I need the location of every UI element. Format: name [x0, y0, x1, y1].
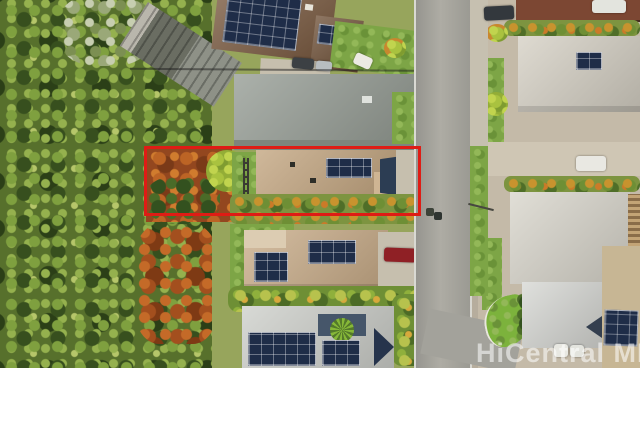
- tan-house-white-wing: [244, 230, 286, 248]
- parkway-strip: [470, 146, 488, 296]
- trash-bin-2: [434, 212, 442, 220]
- hedge-mid-right: [504, 176, 640, 192]
- bottom-white-margin: [0, 368, 640, 426]
- white-truck-top-corner: [592, 0, 626, 13]
- solar-array-large: [222, 0, 302, 51]
- right-roof-shadow: [518, 106, 640, 112]
- property-boundary-overlay: [144, 146, 421, 216]
- parked-suv-street: [484, 5, 515, 21]
- skylight: [362, 96, 372, 103]
- white-solar-house: [242, 306, 394, 368]
- orange-shrub-right: [486, 24, 508, 42]
- gray-roof-house: [234, 74, 414, 150]
- trash-bin-1: [426, 208, 434, 216]
- listing-photo-page: HiCentral MLS: [0, 0, 640, 426]
- courtyard-palm: [330, 318, 354, 342]
- side-lawn-gray-house: [392, 92, 414, 144]
- white-house-solar-right: [322, 340, 360, 366]
- watermark-text: HiCentral MLS: [476, 338, 640, 368]
- right-driveway: [486, 142, 640, 176]
- bottom-house-navy-notch: [586, 316, 602, 338]
- hedge-top-right: [504, 20, 640, 36]
- aerial-photo: HiCentral MLS: [0, 0, 640, 368]
- red-car: [384, 247, 416, 262]
- pergola-slats: [628, 194, 640, 246]
- white-roof-house-right-top: [518, 36, 640, 112]
- orange-tree-top: [384, 38, 406, 58]
- tan-solar-house: [244, 230, 388, 290]
- roof-vent: [305, 4, 314, 11]
- tan-house-solar-right: [308, 240, 356, 264]
- rust-colored-trees: [134, 224, 218, 344]
- right-house-solar-pair: [576, 52, 602, 70]
- white-house-navy-wedge: [374, 328, 394, 366]
- white-house-solar-left: [248, 332, 316, 366]
- tan-house-solar-left: [254, 252, 288, 282]
- white-shed-vehicle: [576, 156, 606, 171]
- sidewalk: [470, 0, 488, 148]
